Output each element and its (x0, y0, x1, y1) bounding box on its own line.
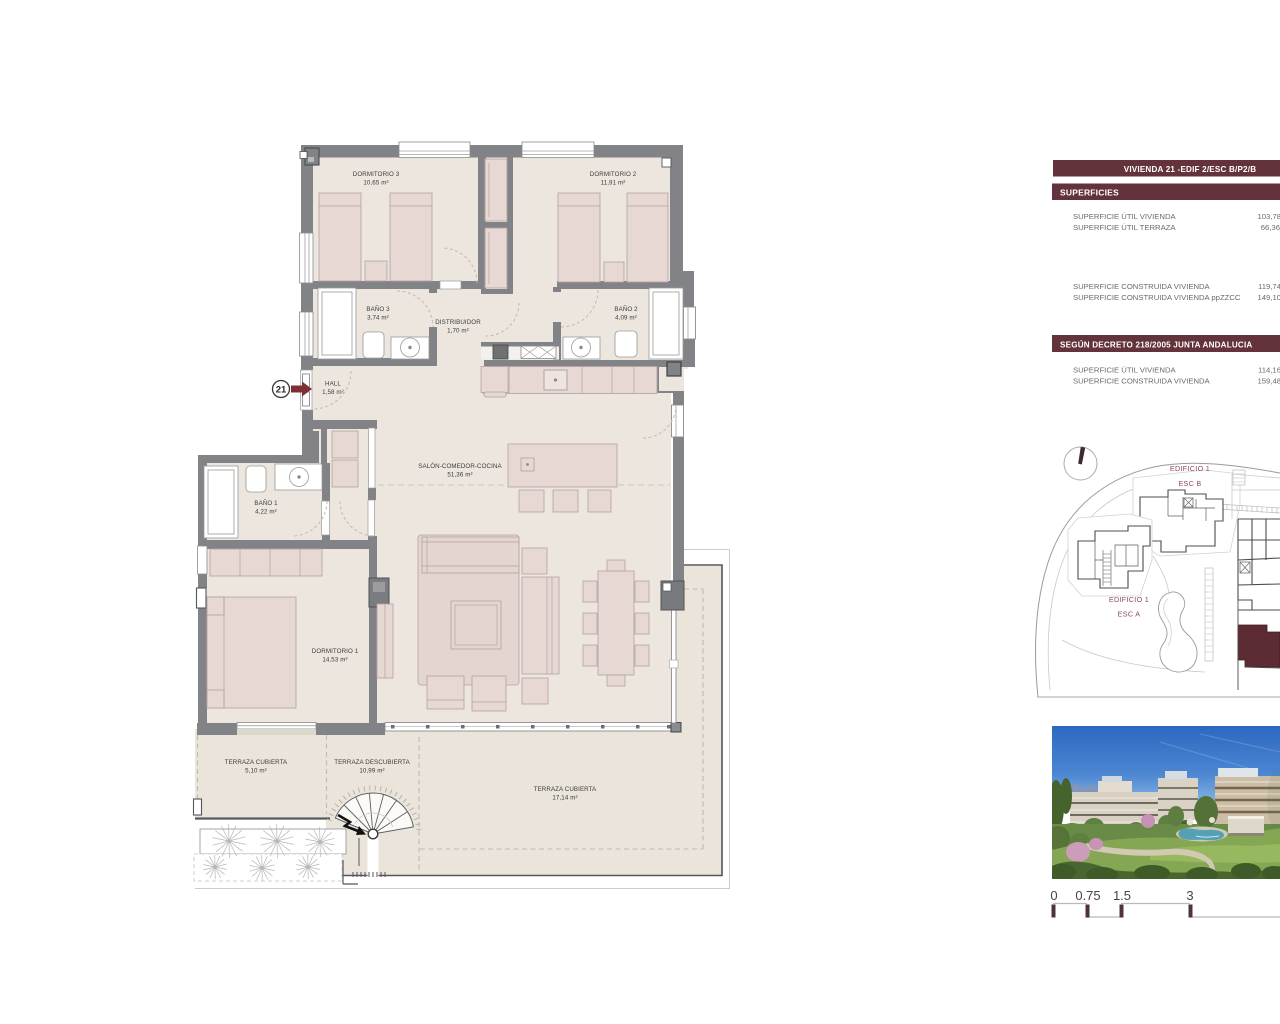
svg-text:51,36 m²: 51,36 m² (447, 472, 472, 479)
svg-text:VIVIENDA 21 -EDIF 2/ESC B/P2/B: VIVIENDA 21 -EDIF 2/ESC B/P2/B (1124, 165, 1257, 174)
svg-text:159,48: 159,48 (1257, 377, 1280, 386)
svg-text:14,53 m²: 14,53 m² (322, 657, 347, 664)
svg-text:4,09 m²: 4,09 m² (615, 315, 637, 322)
svg-text:SUPERFICIE CONSTRUIDA VIVIENDA: SUPERFICIE CONSTRUIDA VIVIENDA (1073, 377, 1211, 386)
svg-text:10,65 m²: 10,65 m² (363, 180, 388, 187)
svg-text:149,10: 149,10 (1257, 293, 1280, 302)
svg-text:3: 3 (1186, 888, 1193, 903)
svg-text:0.75: 0.75 (1075, 888, 1100, 903)
svg-text:SUPERFICIE CONSTRUIDA VIVIENDA: SUPERFICIE CONSTRUIDA VIVIENDA (1073, 282, 1211, 291)
svg-text:BAÑO 1: BAÑO 1 (254, 500, 278, 507)
svg-text:1.5: 1.5 (1113, 888, 1131, 903)
svg-text:SALÓN-COMEDOR-COCINA: SALÓN-COMEDOR-COCINA (418, 463, 502, 470)
svg-text:BAÑO 3: BAÑO 3 (366, 306, 390, 313)
svg-text:TERRAZA CUBIERTA: TERRAZA CUBIERTA (534, 786, 597, 793)
svg-text:114,16: 114,16 (1258, 366, 1280, 375)
svg-text:SUPERFICIE ÚTIL TERRAZA: SUPERFICIE ÚTIL TERRAZA (1073, 223, 1176, 232)
svg-text:HALL: HALL (325, 381, 341, 388)
svg-text:TERRAZA CUBIERTA: TERRAZA CUBIERTA (225, 759, 288, 766)
svg-text:119,74: 119,74 (1258, 282, 1280, 291)
svg-text:DORMITORIO 1: DORMITORIO 1 (312, 648, 359, 655)
svg-text:BAÑO 2: BAÑO 2 (614, 306, 638, 313)
svg-text:ESC B: ESC B (1178, 479, 1201, 488)
svg-text:SUPERFICIES: SUPERFICIES (1060, 188, 1119, 198)
svg-text:1,58 m²: 1,58 m² (322, 389, 344, 396)
svg-text:EDIFICIO 1: EDIFICIO 1 (1170, 464, 1210, 473)
svg-text:DISTRIBUIDOR: DISTRIBUIDOR (435, 319, 481, 326)
svg-text:DORMITORIO 2: DORMITORIO 2 (590, 171, 637, 178)
svg-text:66,36: 66,36 (1261, 223, 1280, 232)
svg-text:11,91 m²: 11,91 m² (601, 180, 626, 187)
svg-text:21: 21 (276, 385, 287, 396)
svg-text:DORMITORIO 3: DORMITORIO 3 (353, 171, 400, 178)
svg-text:103,78: 103,78 (1257, 212, 1280, 221)
svg-text:0: 0 (1050, 888, 1057, 903)
svg-text:ESC A: ESC A (1118, 610, 1141, 619)
svg-text:SUPERFICIE ÚTIL VIVIENDA: SUPERFICIE ÚTIL VIVIENDA (1073, 366, 1177, 375)
svg-text:1,70 m²: 1,70 m² (447, 328, 469, 335)
svg-text:EDIFICIO 1: EDIFICIO 1 (1109, 595, 1149, 604)
svg-text:TERRAZA DESCUBIERTA: TERRAZA DESCUBIERTA (334, 759, 410, 766)
svg-text:10,99 m²: 10,99 m² (359, 768, 384, 775)
svg-text:3,74 m²: 3,74 m² (367, 315, 389, 322)
svg-text:17,14 m²: 17,14 m² (552, 795, 577, 802)
svg-text:5,10 m²: 5,10 m² (245, 768, 267, 775)
svg-text:4,22 m²: 4,22 m² (255, 509, 277, 516)
svg-text:SUPERFICIE CONSTRUIDA VIVIENDA: SUPERFICIE CONSTRUIDA VIVIENDA ppZZCC (1073, 293, 1241, 302)
svg-text:SUPERFICIE ÚTIL VIVIENDA: SUPERFICIE ÚTIL VIVIENDA (1073, 212, 1177, 221)
svg-text:SEGÚN DECRETO 218/2005 JUNTA A: SEGÚN DECRETO 218/2005 JUNTA ANDALUCIA (1060, 341, 1252, 350)
